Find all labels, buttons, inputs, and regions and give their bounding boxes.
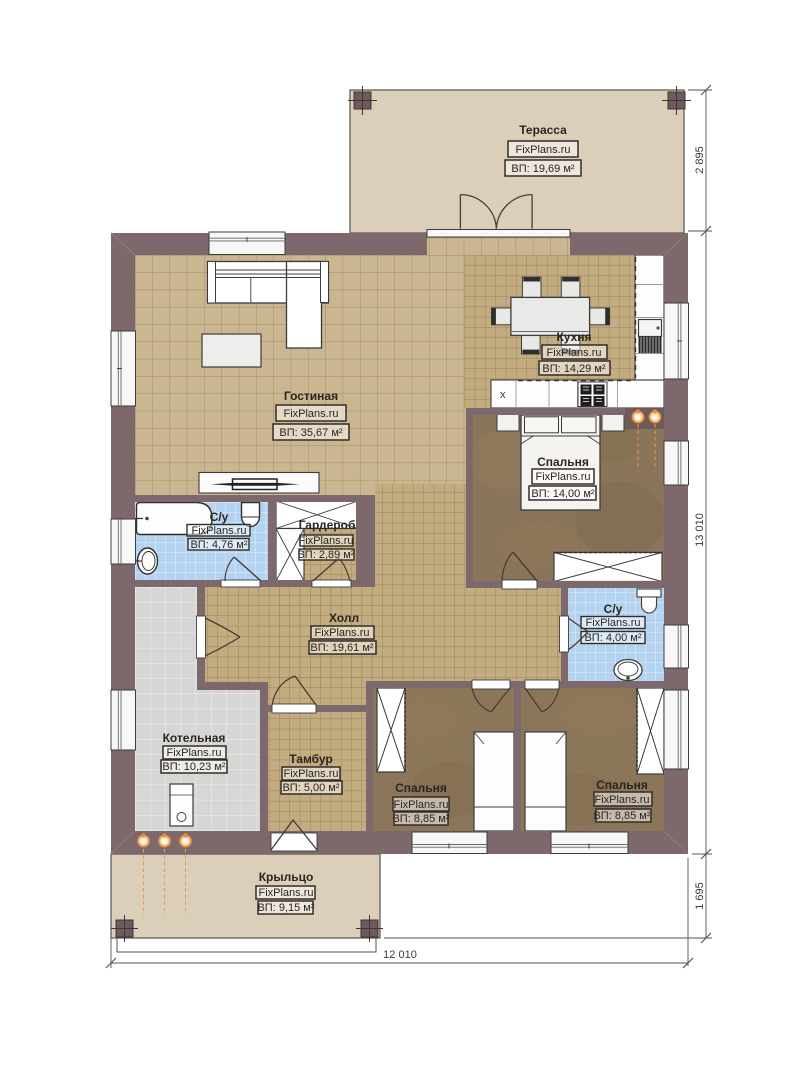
- svg-text:FixPlans.ru: FixPlans.ru: [298, 535, 353, 547]
- svg-text:ВП: 35,67 м²: ВП: 35,67 м²: [279, 427, 343, 439]
- svg-text:ВП: 19,69 м²: ВП: 19,69 м²: [511, 163, 575, 175]
- svg-text:Спальня: Спальня: [537, 455, 589, 469]
- svg-text:FixPlans.ru: FixPlans.ru: [546, 347, 601, 359]
- svg-text:ВП: 4,00 м²: ВП: 4,00 м²: [584, 632, 641, 644]
- svg-text:FixPlans.ru: FixPlans.ru: [191, 525, 246, 537]
- svg-text:Кухня: Кухня: [556, 330, 591, 344]
- svg-text:FixPlans.ru: FixPlans.ru: [166, 747, 221, 759]
- svg-text:FixPlans.ru: FixPlans.ru: [283, 768, 338, 780]
- svg-text:FixPlans.ru: FixPlans.ru: [535, 471, 590, 483]
- svg-text:ВП: 14,00 м²: ВП: 14,00 м²: [531, 488, 595, 500]
- svg-text:Терасса: Терасса: [519, 123, 567, 137]
- svg-text:1 695: 1 695: [694, 882, 706, 910]
- svg-text:С/у: С/у: [604, 602, 623, 616]
- svg-text:ВП: 2,89 м²: ВП: 2,89 м²: [297, 549, 354, 561]
- svg-text:Котельная: Котельная: [163, 731, 226, 745]
- svg-text:С/у: С/у: [210, 510, 229, 524]
- svg-text:2 895: 2 895: [694, 146, 706, 174]
- svg-text:ВП: 19,61 м²: ВП: 19,61 м²: [310, 642, 374, 654]
- svg-text:FixPlans.ru: FixPlans.ru: [594, 794, 649, 806]
- svg-text:x: x: [500, 389, 506, 401]
- svg-text:FixPlans.ru: FixPlans.ru: [283, 408, 338, 420]
- svg-text:Тамбур: Тамбур: [289, 752, 333, 766]
- svg-text:FixPlans.ru: FixPlans.ru: [314, 627, 369, 639]
- svg-text:Крыльцо: Крыльцо: [259, 870, 314, 884]
- svg-text:Спальня: Спальня: [395, 781, 447, 795]
- svg-text:ВП: 8,85 м²: ВП: 8,85 м²: [593, 810, 650, 822]
- svg-text:ВП: 5,00 м²: ВП: 5,00 м²: [282, 782, 339, 794]
- svg-text:ВП: 4,76 м²: ВП: 4,76 м²: [190, 539, 247, 551]
- svg-text:ВП: 14,29 м²: ВП: 14,29 м²: [542, 363, 606, 375]
- svg-text:Холл: Холл: [329, 611, 359, 625]
- svg-text:Гардероб: Гардероб: [299, 518, 356, 532]
- svg-text:Гостиная: Гостиная: [284, 389, 338, 403]
- svg-text:FixPlans.ru: FixPlans.ru: [393, 799, 448, 811]
- svg-text:12 010: 12 010: [383, 949, 417, 961]
- svg-text:13 010: 13 010: [694, 513, 706, 547]
- svg-text:Спальня: Спальня: [596, 778, 648, 792]
- svg-text:ВП: 9,15 м²: ВП: 9,15 м²: [257, 902, 314, 914]
- svg-text:ВП: 10,23 м²: ВП: 10,23 м²: [162, 761, 226, 773]
- svg-text:ВП: 8,85 м²: ВП: 8,85 м²: [392, 813, 449, 825]
- svg-text:FixPlans.ru: FixPlans.ru: [515, 144, 570, 156]
- svg-text:FixPlans.ru: FixPlans.ru: [585, 617, 640, 629]
- svg-text:FixPlans.ru: FixPlans.ru: [258, 887, 313, 899]
